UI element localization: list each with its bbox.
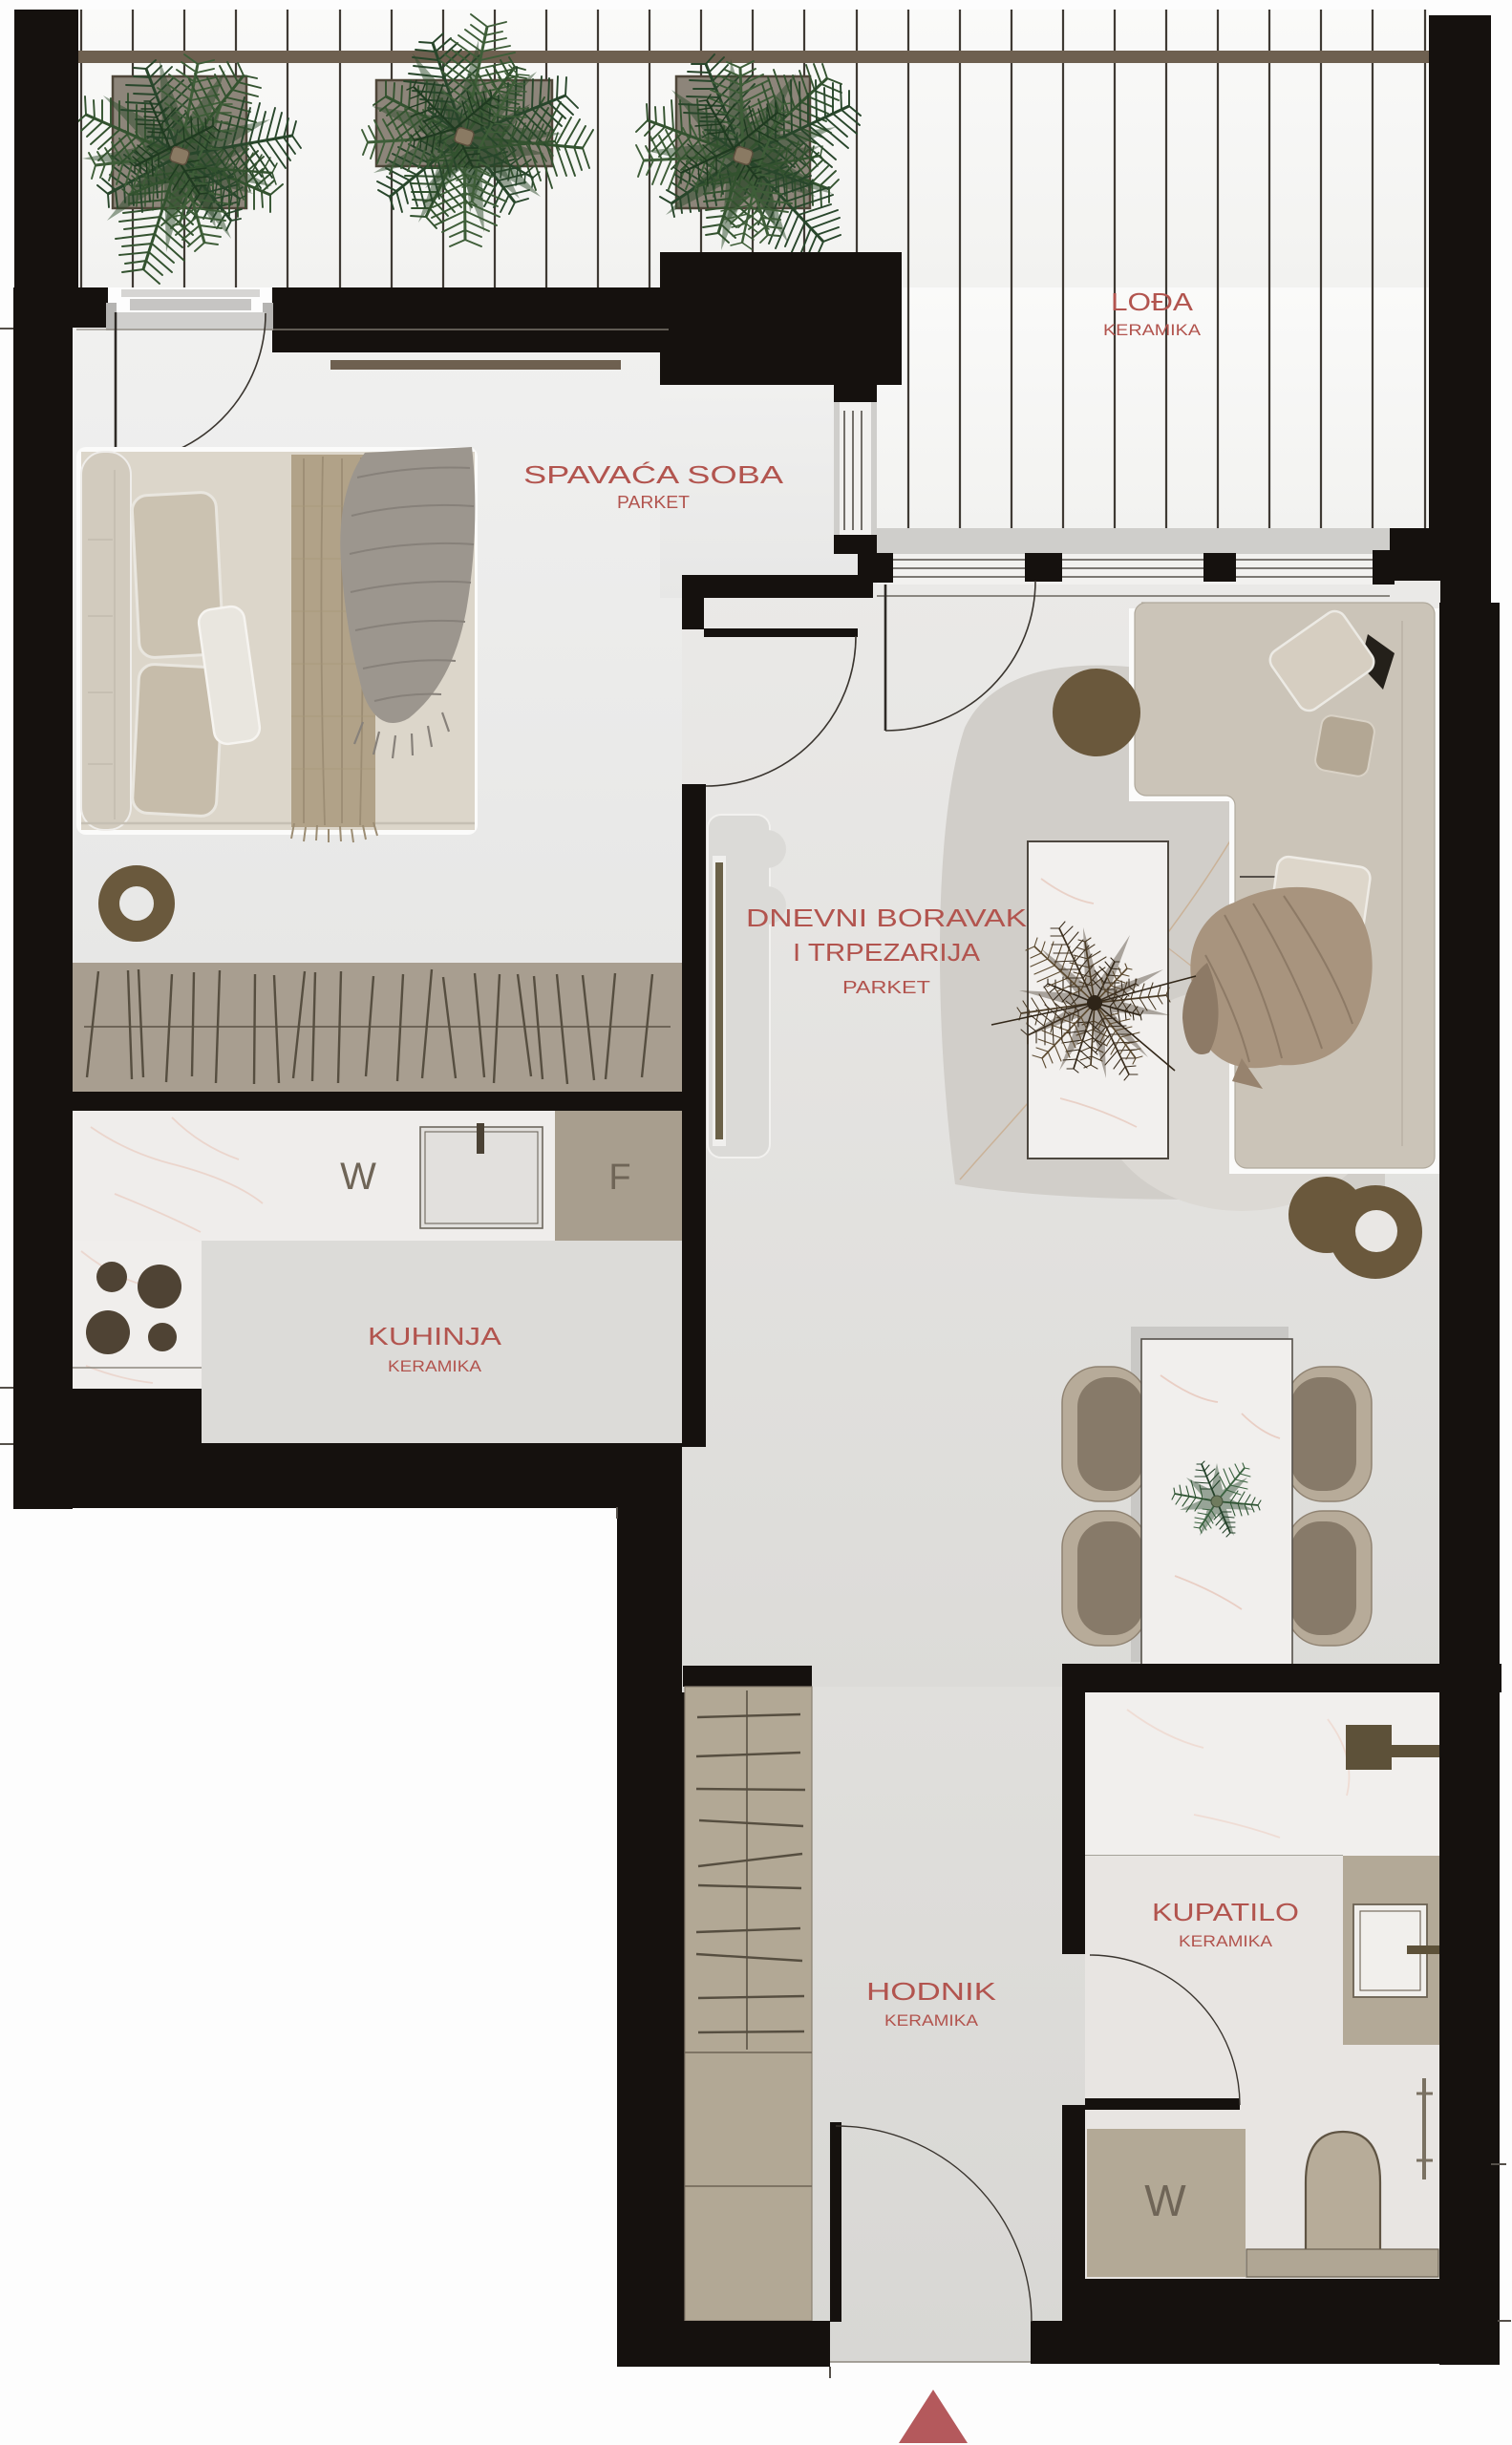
svg-text:I TRPEZARIJA: I TRPEZARIJA [793, 938, 981, 967]
svg-text:SPAVAĆA SOBA: SPAVAĆA SOBA [523, 460, 784, 489]
svg-text:W: W [1144, 2176, 1186, 2225]
svg-text:KERAMIKA: KERAMIKA [388, 1357, 482, 1375]
svg-text:KERAMIKA: KERAMIKA [884, 2011, 979, 2030]
svg-text:DNEVNI BORAVAK: DNEVNI BORAVAK [746, 904, 1028, 932]
svg-text:PARKET: PARKET [842, 978, 930, 997]
svg-text:F: F [608, 1158, 630, 1198]
svg-text:KERAMIKA: KERAMIKA [1179, 1932, 1273, 1950]
svg-text:LOĐA: LOĐA [1111, 287, 1194, 316]
svg-text:W: W [340, 1156, 376, 1198]
svg-text:PARKET: PARKET [617, 493, 690, 512]
svg-text:KUHINJA: KUHINJA [368, 1322, 502, 1350]
svg-text:KERAMIKA: KERAMIKA [1103, 321, 1202, 339]
svg-text:HODNIK: HODNIK [866, 1977, 997, 2006]
svg-text:KUPATILO: KUPATILO [1152, 1898, 1299, 1926]
